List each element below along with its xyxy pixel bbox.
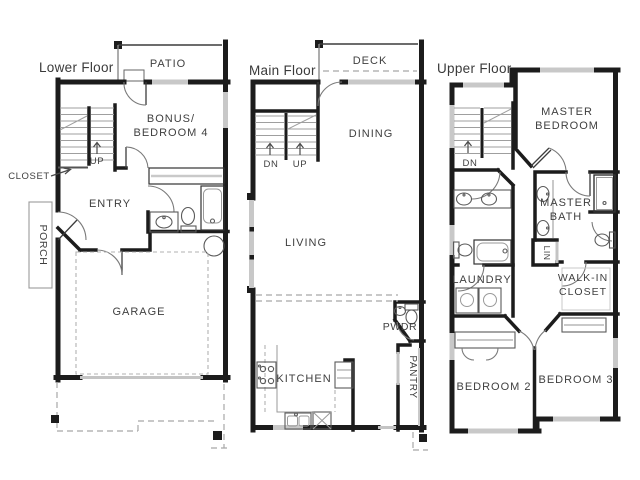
floor-plan-page: Lower Floor PATIO BONUS/ BEDROOM 4 ENTRY… [0,0,640,480]
room-label-dining: DINING [349,128,394,140]
room-label-master-bedroom-1: MASTER [541,106,593,118]
water-heater [204,236,224,256]
room-label-garage: GARAGE [112,306,165,318]
hall-bath-tub [474,240,511,264]
room-label-patio: PATIO [150,58,186,70]
kitchen-ceiling-dashed [256,295,398,301]
closet-callout [51,168,71,176]
room-label-entry: ENTRY [89,198,131,210]
dn-arrow [267,144,274,156]
laundry-machines [456,288,501,313]
up-label: UP [90,156,104,167]
closet-label: CLOSET [8,171,50,182]
lower-bath-toilet [181,208,196,233]
patio-door-leaf [124,70,144,81]
upper-floor-label: Upper Floor [437,61,512,76]
main-floor-label: Main Floor [249,63,316,78]
bedroom3-closet [562,318,606,332]
room-label-porch: PORCH [37,225,49,266]
lower-bath-vanity [150,212,178,232]
dn-label: DN [264,159,279,170]
room-label-bedroom2: BEDROOM 2 [456,381,531,393]
room-label-kitchen: KITCHEN [276,373,331,385]
floor-plan-canvas: Lower Floor PATIO BONUS/ BEDROOM 4 ENTRY… [0,0,640,480]
driveway-dashed [51,382,228,448]
room-label-deck: DECK [353,55,388,67]
master-shower [594,175,615,212]
room-label-walkin-1: WALK-IN [558,272,608,284]
up-label: UP [293,159,307,170]
room-label-walkin-2: CLOSET [559,286,607,298]
room-label-bedroom3: BEDROOM 3 [538,374,613,386]
up-arrow [297,144,304,156]
lower-floor-stairs [60,108,114,160]
room-label-master-bath-2: BATH [550,211,583,223]
room-label-bonus-2: BEDROOM 4 [133,127,208,139]
room-label-powder: PWDR [383,321,417,333]
room-label-master-bedroom-2: BEDROOM [535,120,599,132]
kitchen-stove [257,362,276,388]
upper-floor-stairs [454,108,511,158]
up-arrow [94,143,101,155]
room-label-bonus-1: BONUS/ [147,113,195,125]
master-bath-vanity [537,180,553,238]
hall-bath-vanity [454,190,511,208]
room-label-linen: LIN [542,246,552,261]
room-label-pantry: PANTRY [407,355,418,398]
lower-bath-tub [201,186,224,230]
entry-closet [149,168,224,184]
hall-bath-toilet [454,242,473,258]
room-label-laundry: LAUNDRY [452,274,511,286]
dn-label: DN [463,158,478,169]
room-label-master-bath-1: MASTER [540,197,592,209]
bedroom2-closet [455,332,515,360]
lower-floor-plan: Lower Floor PATIO BONUS/ BEDROOM 4 ENTRY… [8,41,228,448]
kitchen-island [335,362,353,388]
lower-floor-label: Lower Floor [39,60,114,75]
room-label-living: LIVING [285,237,327,249]
upper-floor-plan: Upper Floor MASTER BEDROOM MASTER BATH L… [437,61,618,431]
rear-step-dashed [413,432,428,450]
main-floor-plan: Main Floor DECK DINING LIVING KITCHEN PW… [247,40,428,450]
